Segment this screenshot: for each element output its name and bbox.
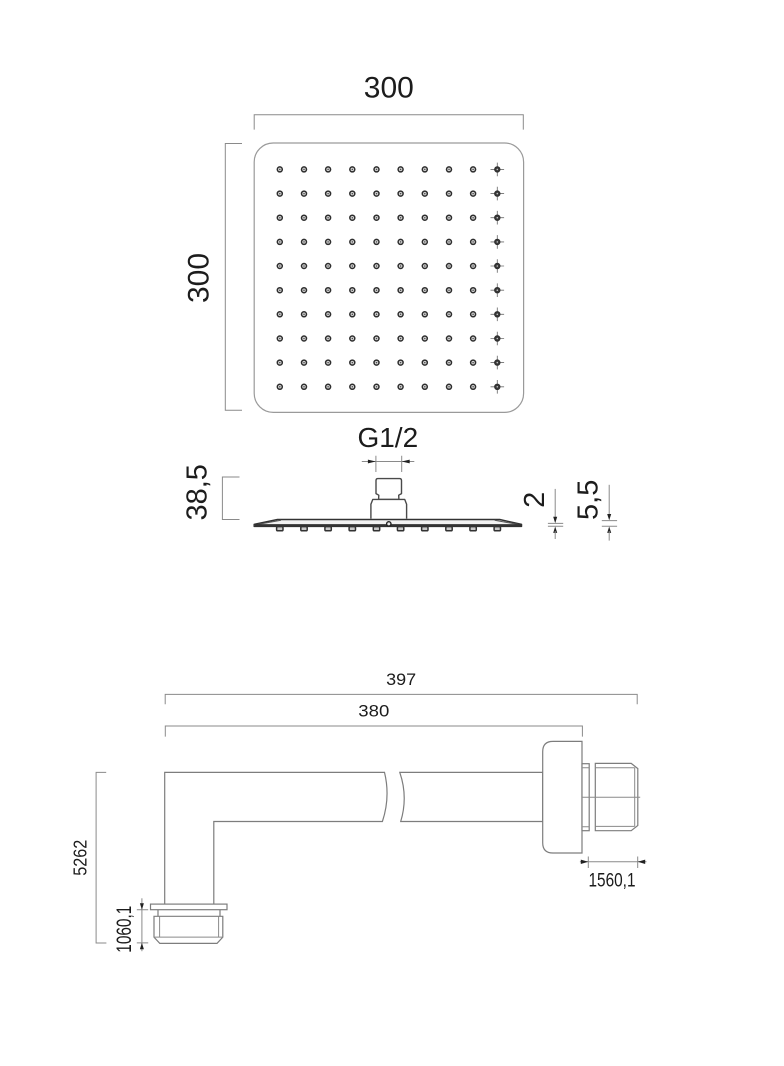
svg-text:38,5: 38,5 [182,464,214,520]
svg-text:397: 397 [386,670,416,689]
svg-text:1560,1: 1560,1 [589,871,636,892]
svg-text:G1/2: G1/2 [357,422,418,453]
svg-text:300: 300 [183,253,216,303]
svg-text:5,5: 5,5 [573,480,605,520]
svg-text:1060,1: 1060,1 [113,906,136,953]
svg-text:300: 300 [364,72,414,105]
svg-text:5262: 5262 [71,840,91,876]
svg-text:380: 380 [358,701,389,720]
svg-text:2: 2 [519,492,551,508]
